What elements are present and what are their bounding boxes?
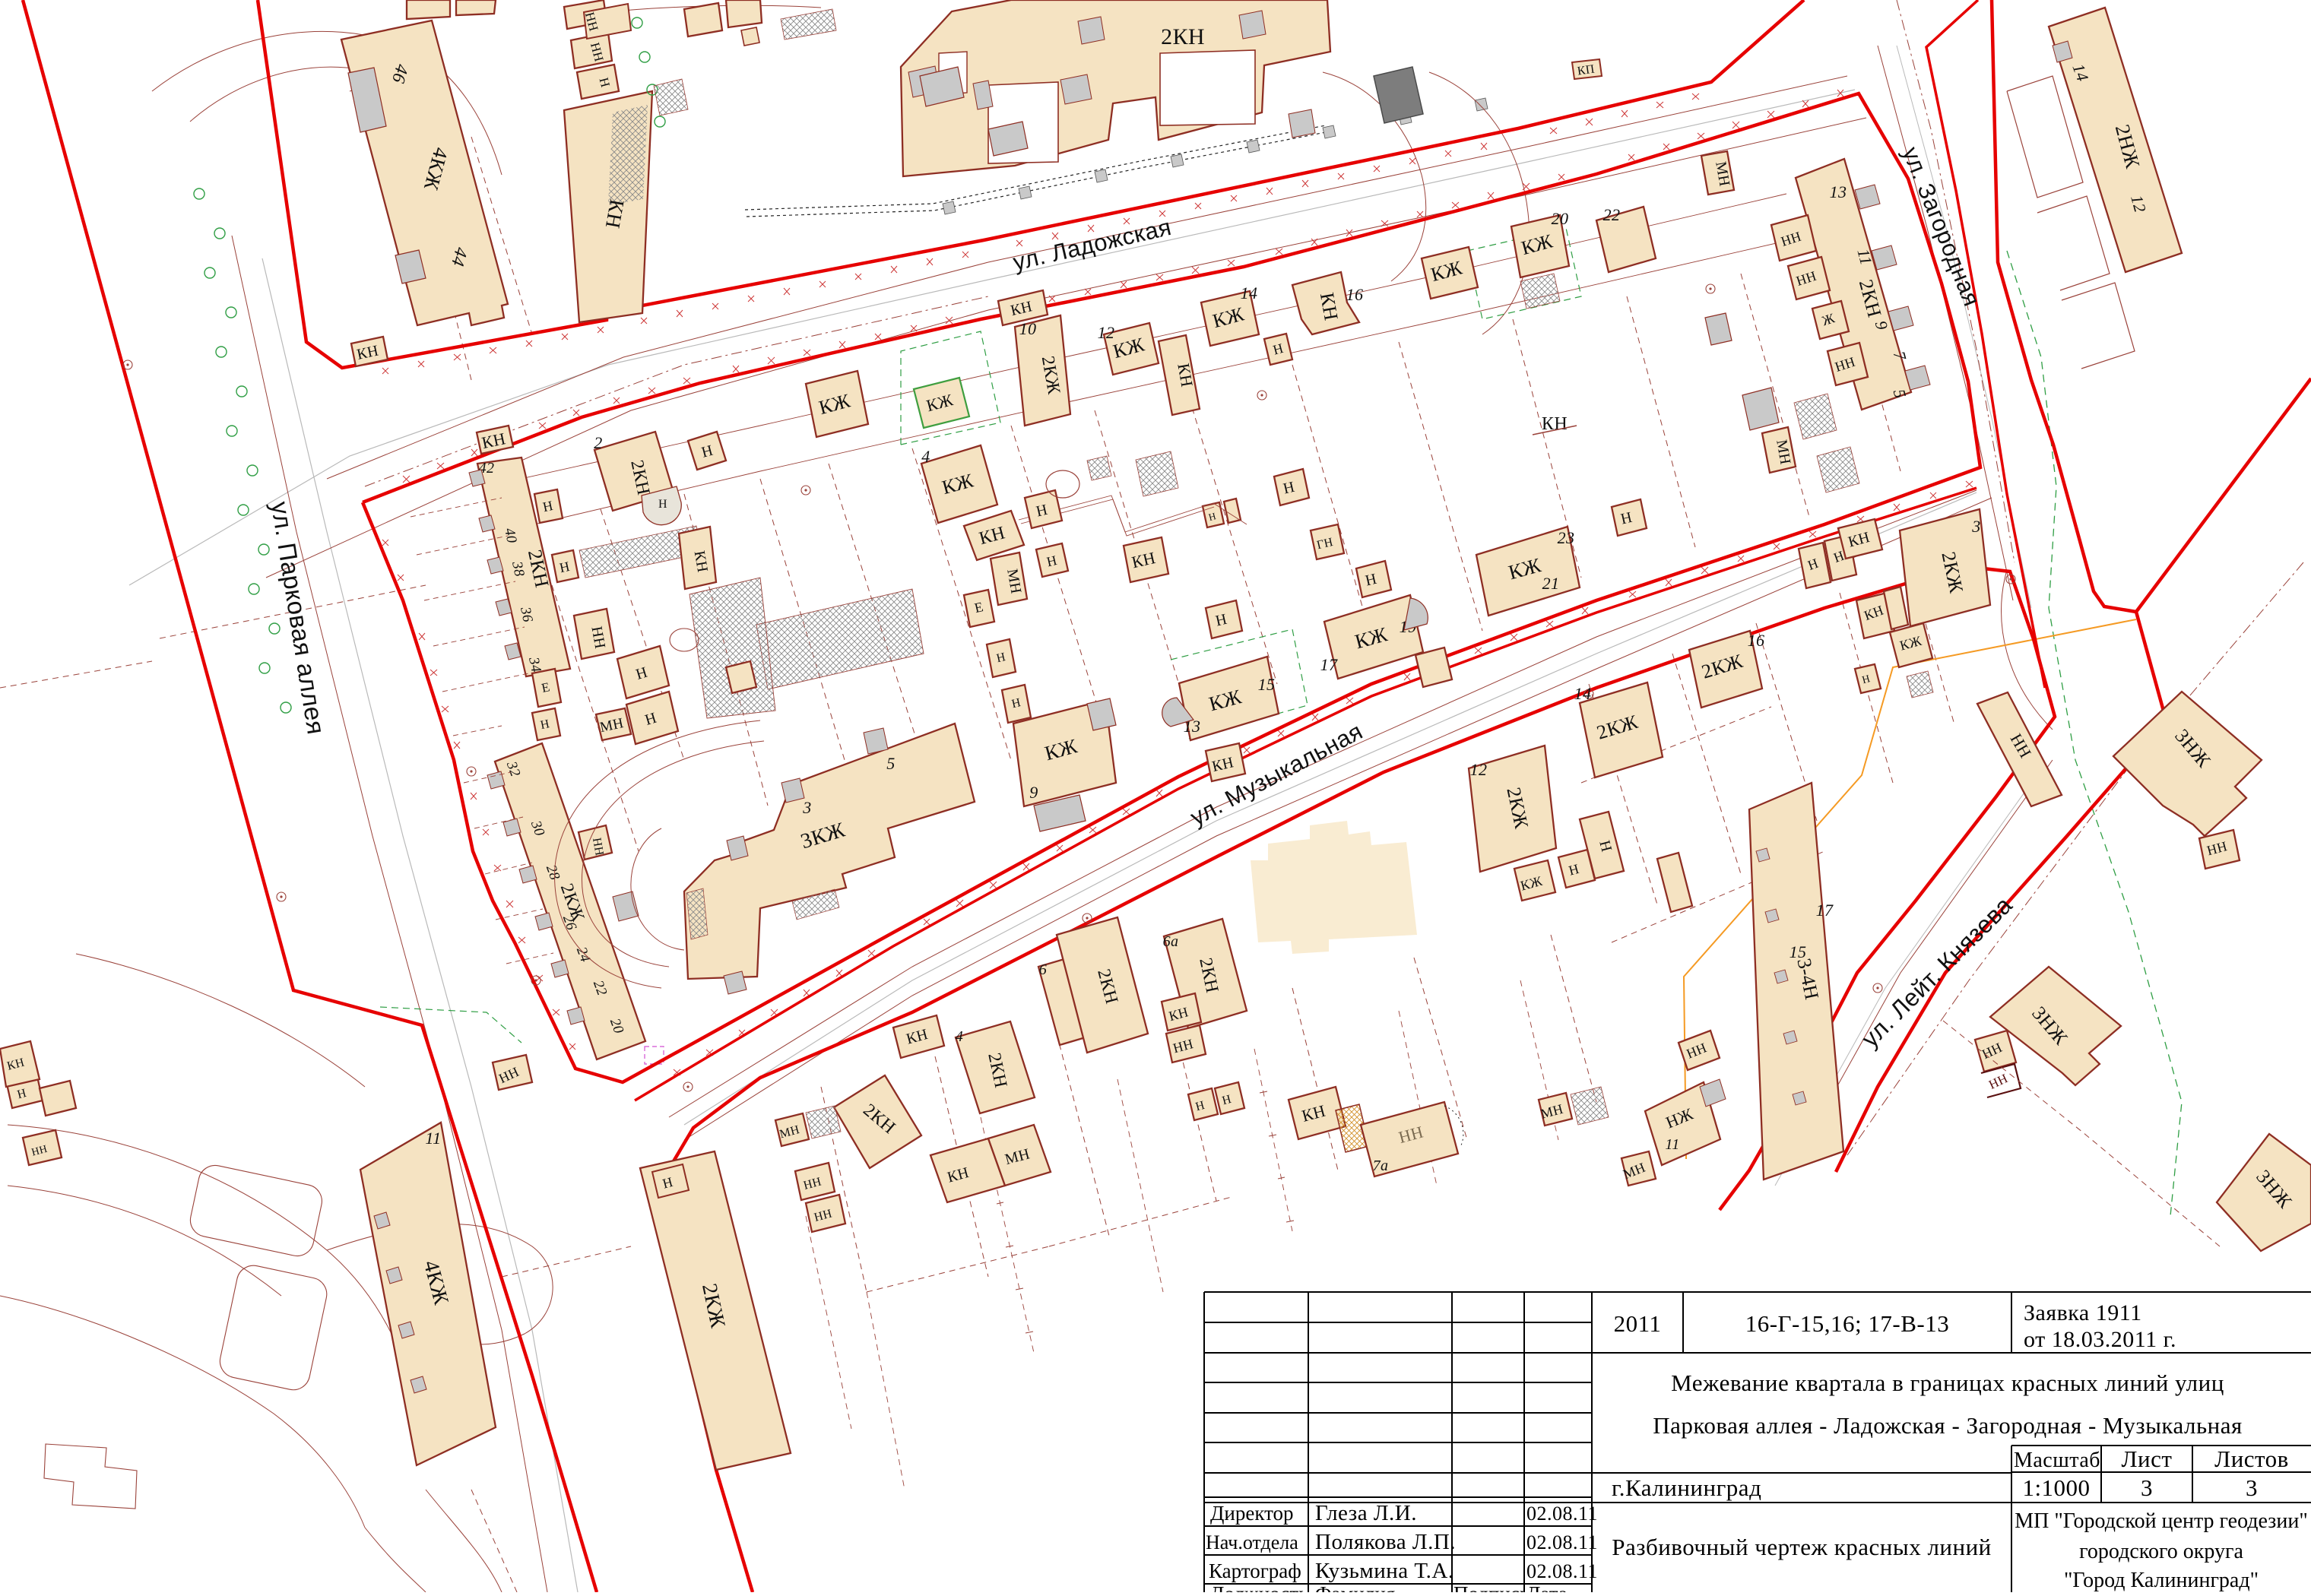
svg-text:16-Г-15,16; 17-В-13: 16-Г-15,16; 17-В-13 bbox=[1745, 1310, 1950, 1337]
svg-text:КН: КН bbox=[1542, 414, 1568, 434]
svg-text:Картограф: Картограф bbox=[1209, 1560, 1301, 1582]
svg-text:2011: 2011 bbox=[1614, 1310, 1662, 1337]
svg-text:14: 14 bbox=[1574, 684, 1592, 703]
svg-text:Кузьмина Т.А.: Кузьмина Т.А. bbox=[1315, 1559, 1454, 1583]
svg-text:Масштаб: Масштаб bbox=[2014, 1449, 2100, 1472]
svg-text:3: 3 bbox=[1971, 517, 1980, 536]
svg-text:15: 15 bbox=[1790, 942, 1807, 961]
svg-text:Глеза Л.И.: Глеза Л.И. bbox=[1315, 1501, 1417, 1525]
svg-text:02.08.11: 02.08.11 bbox=[1526, 1503, 1598, 1525]
svg-text:Листов: Листов bbox=[2214, 1446, 2289, 1472]
svg-text:13: 13 bbox=[1830, 182, 1847, 201]
svg-text:Подпись: Подпись bbox=[1453, 1582, 1529, 1592]
svg-text:Лист: Лист bbox=[2122, 1446, 2173, 1472]
svg-text:2КН: 2КН bbox=[1161, 24, 1205, 49]
svg-text:КП: КП bbox=[1577, 63, 1596, 78]
svg-text:11: 11 bbox=[425, 1129, 441, 1148]
svg-text:Заявка 1911: Заявка 1911 bbox=[2024, 1300, 2142, 1325]
svg-text:Фамилия: Фамилия bbox=[1315, 1582, 1395, 1592]
svg-text:6а: 6а bbox=[1163, 933, 1179, 950]
svg-text:38: 38 bbox=[509, 559, 528, 578]
svg-text:16: 16 bbox=[1346, 285, 1364, 304]
svg-text:12: 12 bbox=[1098, 323, 1115, 342]
svg-text:от 18.03.2011 г.: от 18.03.2011 г. bbox=[2024, 1327, 2176, 1352]
svg-text:12: 12 bbox=[1470, 760, 1488, 779]
svg-text:МП "Городской центр геодезии": МП "Городской центр геодезии" bbox=[2015, 1509, 2308, 1533]
svg-text:7а: 7а bbox=[1373, 1157, 1389, 1174]
svg-text:4: 4 bbox=[956, 1028, 963, 1045]
svg-text:Полякова Л.П.: Полякова Л.П. bbox=[1315, 1530, 1456, 1554]
svg-text:г.Калининград: г.Калининград bbox=[1612, 1474, 1761, 1501]
svg-text:1:1000: 1:1000 bbox=[2022, 1474, 2090, 1501]
svg-text:Парковая аллея - Ладожская - З: Парковая аллея - Ладожская - Загородная … bbox=[1653, 1412, 2243, 1439]
svg-text:Дата: Дата bbox=[1526, 1582, 1568, 1592]
svg-text:02.08.11: 02.08.11 bbox=[1526, 1531, 1598, 1553]
svg-text:14: 14 bbox=[1241, 283, 1258, 302]
svg-text:20: 20 bbox=[1552, 209, 1569, 228]
svg-text:Должность: Должность bbox=[1210, 1582, 1308, 1592]
svg-text:городского округа: городского округа bbox=[2079, 1540, 2243, 1563]
svg-text:22: 22 bbox=[1603, 205, 1621, 224]
svg-text:9: 9 bbox=[1029, 783, 1038, 802]
svg-text:23: 23 bbox=[1558, 528, 1575, 547]
svg-text:21: 21 bbox=[1542, 574, 1560, 593]
svg-text:5: 5 bbox=[886, 754, 895, 773]
svg-text:3: 3 bbox=[2141, 1474, 2153, 1501]
svg-text:3: 3 bbox=[802, 798, 811, 817]
svg-text:02.08.11: 02.08.11 bbox=[1526, 1560, 1598, 1582]
svg-text:15: 15 bbox=[1258, 675, 1276, 694]
svg-text:4: 4 bbox=[921, 447, 930, 466]
svg-text:16: 16 bbox=[1748, 631, 1765, 650]
svg-text:17: 17 bbox=[1320, 655, 1338, 674]
svg-text:Разбивочный чертеж красных лин: Разбивочный чертеж красных линий bbox=[1612, 1534, 1992, 1560]
svg-text:17: 17 bbox=[1816, 901, 1834, 920]
svg-text:Межевание квартала в границах: Межевание квартала в границах красных ли… bbox=[1671, 1370, 2224, 1396]
svg-text:6: 6 bbox=[1039, 961, 1047, 978]
svg-text:Нач.отдела: Нач.отдела bbox=[1206, 1531, 1298, 1553]
svg-text:10: 10 bbox=[1019, 319, 1037, 338]
svg-text:2: 2 bbox=[594, 433, 602, 452]
svg-text:"Город Калининград": "Город Калининград" bbox=[2064, 1569, 2259, 1592]
svg-text:Директор: Директор bbox=[1210, 1502, 1294, 1525]
svg-text:Н: Н bbox=[658, 498, 667, 511]
svg-text:11: 11 bbox=[1665, 1136, 1679, 1153]
svg-text:36: 36 bbox=[517, 605, 536, 624]
svg-text:3: 3 bbox=[2246, 1474, 2258, 1501]
